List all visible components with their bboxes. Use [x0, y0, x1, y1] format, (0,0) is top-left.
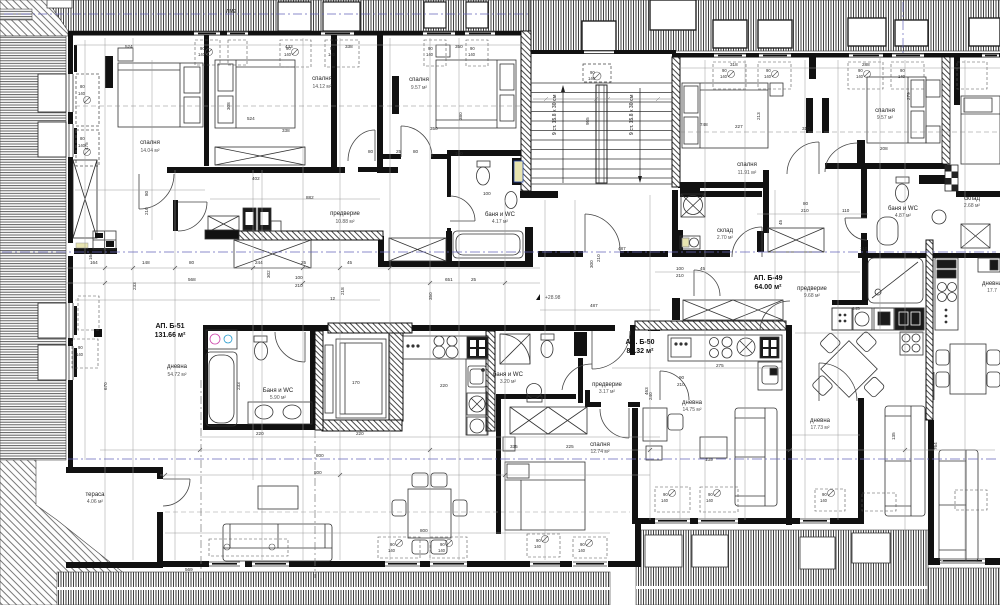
svg-text:90: 90 [330, 46, 335, 51]
svg-text:210: 210 [596, 254, 601, 262]
svg-text:310: 310 [802, 126, 810, 131]
svg-text:2.68 м²: 2.68 м² [964, 203, 981, 209]
svg-text:882: 882 [306, 195, 314, 200]
svg-text:170: 170 [352, 380, 360, 385]
svg-text:баня и WC: баня и WC [888, 206, 919, 212]
svg-text:670: 670 [103, 382, 108, 390]
svg-text:140: 140 [534, 544, 542, 549]
svg-text:100: 100 [483, 191, 491, 196]
svg-text:524: 524 [247, 116, 255, 121]
svg-text:402: 402 [252, 176, 260, 181]
svg-text:9.57 м²: 9.57 м² [877, 115, 894, 121]
svg-text:140: 140 [388, 548, 396, 553]
svg-text:140: 140 [856, 74, 864, 79]
svg-text:140: 140 [578, 548, 586, 553]
svg-text:+28.98: +28.98 [545, 295, 561, 301]
svg-text:14.04 м²: 14.04 м² [140, 148, 159, 154]
svg-text:90: 90 [858, 68, 863, 73]
svg-text:275: 275 [716, 363, 724, 368]
svg-text:80: 80 [189, 260, 195, 265]
svg-text:склад: склад [717, 228, 734, 234]
svg-text:предверие: предверие [592, 382, 622, 388]
svg-text:220: 220 [356, 431, 364, 436]
svg-text:80: 80 [80, 136, 85, 141]
svg-text:2.70 м²: 2.70 м² [717, 235, 734, 241]
svg-text:тераса: тераса [85, 492, 105, 498]
svg-text:45: 45 [778, 219, 783, 225]
svg-text:300: 300 [589, 260, 594, 268]
svg-text:288: 288 [862, 62, 870, 67]
svg-text:100: 100 [676, 266, 684, 271]
svg-text:208: 208 [880, 146, 888, 151]
svg-text:244: 244 [255, 260, 263, 265]
svg-text:баня и WC: баня и WC [493, 372, 524, 378]
svg-text:350: 350 [428, 292, 433, 300]
svg-text:140: 140 [438, 548, 446, 553]
svg-text:100: 100 [295, 275, 303, 280]
svg-text:140: 140 [820, 498, 828, 503]
svg-text:463: 463 [644, 387, 649, 395]
svg-text:80: 80 [368, 149, 374, 154]
svg-text:800: 800 [314, 470, 322, 475]
svg-text:90: 90 [390, 542, 395, 547]
svg-text:220: 220 [256, 431, 264, 436]
svg-text:140: 140 [898, 74, 906, 79]
svg-text:спалня: спалня [140, 140, 160, 146]
svg-text:64.00 м²: 64.00 м² [755, 284, 783, 291]
svg-text:14.75 м²: 14.75 м² [682, 407, 701, 413]
svg-text:487: 487 [590, 303, 598, 308]
svg-text:3.20 м²: 3.20 м² [500, 379, 517, 385]
svg-text:140: 140 [78, 91, 86, 96]
svg-text:227: 227 [735, 124, 743, 129]
svg-text:350: 350 [455, 44, 463, 49]
svg-text:17.73 м²: 17.73 м² [810, 425, 829, 431]
svg-text:213: 213 [756, 112, 761, 120]
svg-text:140: 140 [468, 52, 476, 57]
svg-text:80: 80 [80, 84, 85, 89]
svg-text:233: 233 [236, 382, 241, 390]
svg-text:25: 25 [396, 149, 402, 154]
svg-text:225: 225 [566, 444, 574, 449]
svg-text:90: 90 [580, 542, 585, 547]
svg-text:90: 90 [536, 538, 541, 543]
svg-text:135: 135 [705, 457, 713, 462]
svg-text:спалня: спалня [875, 108, 895, 114]
svg-text:164: 164 [90, 260, 98, 265]
svg-text:338: 338 [282, 128, 290, 133]
svg-text:140: 140 [661, 498, 669, 503]
svg-text:233: 233 [132, 282, 137, 290]
svg-text:90: 90 [722, 68, 727, 73]
svg-text:338: 338 [345, 44, 353, 49]
svg-text:335: 335 [510, 444, 518, 449]
svg-text:90: 90 [766, 68, 771, 73]
svg-text:164: 164 [88, 252, 93, 260]
svg-text:45: 45 [347, 260, 353, 265]
svg-text:11.91 м²: 11.91 м² [738, 170, 757, 176]
svg-text:568: 568 [188, 277, 196, 282]
svg-text:110: 110 [842, 208, 850, 213]
svg-text:220: 220 [440, 383, 448, 388]
svg-text:140: 140 [764, 74, 772, 79]
svg-text:475: 475 [84, 142, 89, 150]
svg-text:433: 433 [285, 44, 293, 49]
svg-text:АП. Б-50: АП. Б-50 [625, 339, 654, 346]
svg-text:25: 25 [301, 260, 307, 265]
svg-text:380: 380 [458, 112, 463, 120]
svg-text:651: 651 [445, 277, 453, 282]
svg-text:предверие: предверие [797, 286, 827, 292]
svg-text:318: 318 [730, 62, 738, 67]
svg-text:524: 524 [125, 44, 133, 49]
svg-text:800: 800 [420, 528, 428, 533]
svg-text:4.06 м²: 4.06 м² [87, 499, 104, 505]
svg-text:12.74 м²: 12.74 м² [590, 449, 609, 455]
svg-text:4.87 м²: 4.87 м² [895, 213, 912, 219]
svg-text:спалня: спалня [409, 77, 429, 83]
svg-text:9 ст. 15.8 х 30 см: 9 ст. 15.8 х 30 см [629, 94, 635, 135]
svg-text:дневна: дневна [982, 281, 1000, 287]
svg-text:131.66 м²: 131.66 м² [155, 332, 187, 339]
svg-text:спалня: спалня [312, 76, 332, 82]
svg-text:спалня: спалня [737, 162, 757, 168]
svg-text:Баня и WC: Баня и WC [263, 388, 294, 394]
svg-text:487: 487 [618, 246, 626, 251]
svg-text:АП. Б-51: АП. Б-51 [155, 323, 184, 330]
svg-text:800: 800 [316, 453, 324, 458]
svg-text:210: 210 [144, 207, 149, 215]
svg-text:90: 90 [78, 345, 83, 350]
svg-text:90: 90 [679, 375, 685, 380]
svg-text:спалня: спалня [590, 442, 610, 448]
svg-text:90: 90 [470, 46, 475, 51]
svg-text:190: 190 [455, 151, 463, 156]
svg-text:90: 90 [663, 492, 668, 497]
svg-text:764: 764 [933, 442, 938, 450]
svg-text:140: 140 [284, 52, 292, 57]
svg-text:10.88 м²: 10.88 м² [335, 219, 354, 225]
svg-text:12: 12 [330, 296, 336, 301]
svg-text:80: 80 [803, 201, 809, 206]
svg-text:145: 145 [852, 306, 860, 311]
svg-text:90: 90 [590, 70, 595, 75]
svg-text:АП. Б-49: АП. Б-49 [753, 275, 782, 282]
svg-text:17.7: 17.7 [987, 288, 997, 294]
svg-text:баня и WC: баня и WC [485, 212, 516, 218]
svg-text:дневна: дневна [167, 364, 188, 370]
svg-text:210: 210 [676, 273, 684, 278]
svg-text:90: 90 [900, 68, 905, 73]
svg-text:90: 90 [428, 46, 433, 51]
svg-text:350: 350 [430, 126, 438, 131]
svg-text:748: 748 [700, 122, 708, 127]
svg-text:308: 308 [226, 102, 231, 110]
svg-text:140: 140 [328, 52, 336, 57]
svg-text:140: 140 [426, 52, 434, 57]
svg-text:210: 210 [677, 382, 685, 387]
svg-text:955: 955 [585, 117, 590, 125]
svg-text:110: 110 [860, 246, 868, 251]
svg-text:140: 140 [720, 74, 728, 79]
svg-text:218: 218 [340, 287, 345, 295]
svg-text:140: 140 [76, 352, 84, 357]
svg-text:80: 80 [144, 190, 149, 196]
svg-text:89.32 м²: 89.32 м² [627, 348, 655, 355]
svg-text:склад: склад [964, 196, 981, 202]
svg-text:ЛМ2: ЛМ2 [226, 9, 236, 15]
svg-text:302: 302 [266, 270, 271, 278]
svg-text:148: 148 [142, 260, 150, 265]
svg-text:279: 279 [906, 92, 911, 100]
svg-text:90: 90 [200, 46, 205, 51]
svg-text:9 ст. 15.8 х 30 см: 9 ст. 15.8 х 30 см [552, 94, 558, 135]
svg-text:90: 90 [708, 492, 713, 497]
svg-text:140: 140 [706, 498, 714, 503]
svg-text:80: 80 [413, 149, 419, 154]
svg-text:дневна: дневна [810, 418, 831, 424]
svg-text:569: 569 [185, 567, 193, 572]
svg-text:25: 25 [471, 277, 477, 282]
svg-text:предверие: предверие [330, 211, 360, 217]
svg-text:140: 140 [588, 76, 596, 81]
svg-text:90: 90 [822, 492, 827, 497]
svg-text:3.17 м²: 3.17 м² [599, 389, 616, 395]
svg-text:45: 45 [700, 266, 706, 271]
svg-text:135: 135 [891, 432, 896, 440]
svg-text:210: 210 [801, 208, 809, 213]
svg-text:54.72 м²: 54.72 м² [167, 372, 186, 378]
svg-text:210: 210 [295, 283, 303, 288]
svg-text:14.12 м²: 14.12 м² [312, 84, 331, 90]
svg-text:140: 140 [198, 52, 206, 57]
svg-text:5.90 м²: 5.90 м² [270, 395, 287, 401]
svg-text:90: 90 [440, 542, 445, 547]
svg-text:9.68 м²: 9.68 м² [804, 293, 821, 299]
svg-text:4.17 м²: 4.17 м² [492, 219, 509, 225]
svg-text:9.57 м²: 9.57 м² [411, 85, 428, 91]
svg-text:дневна: дневна [682, 400, 703, 406]
